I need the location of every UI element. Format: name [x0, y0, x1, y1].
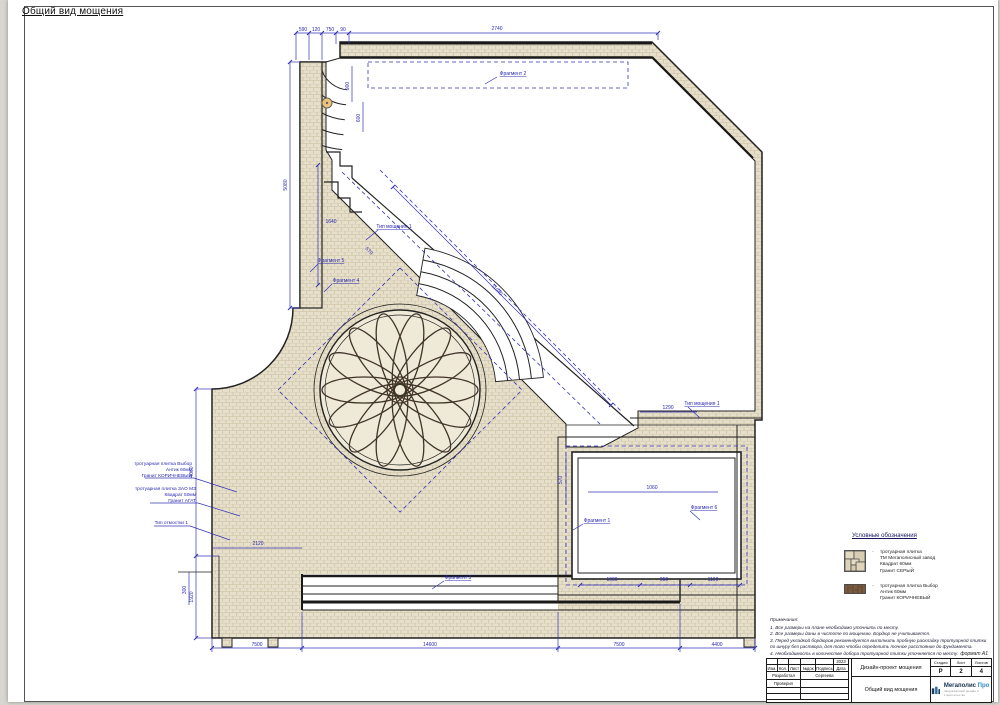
- note-item: 1. Все размеры на плане необходимо уточн…: [770, 625, 988, 632]
- megapolis-logo-icon: [931, 684, 941, 696]
- svg-text:1640: 1640: [325, 219, 336, 225]
- stamp-developer-name: Сергеева: [801, 672, 849, 680]
- note-item: 2. Все размеры даны в чистоте по мощению…: [770, 631, 988, 638]
- svg-text:1190: 1190: [708, 577, 719, 583]
- svg-text:Фрагмент 2: Фрагмент 2: [500, 71, 527, 77]
- title-block-center: Дизайн-проект мощения Общий вид мощения: [852, 659, 931, 702]
- project-name: Дизайн-проект мощения: [852, 659, 930, 677]
- svg-text:1290: 1290: [662, 405, 673, 411]
- svg-text:Фрагмент 5: Фрагмент 5: [318, 258, 345, 264]
- svg-text:1920: 1920: [189, 591, 195, 602]
- svg-text:950: 950: [660, 577, 669, 583]
- legend: Условные обозначения · тротуарная плитка…: [844, 533, 990, 612]
- svg-text:Фрагмент 1: Фрагмент 1: [584, 518, 611, 524]
- sheets-total: 4: [972, 667, 991, 676]
- svg-text:2120: 2120: [252, 541, 263, 547]
- svg-text:Фрагмент 4: Фрагмент 4: [333, 278, 360, 284]
- title-block-right: Стадия Лист Листов Р 2 4 Мегаполис Про л…: [931, 659, 991, 702]
- svg-text:Тип мощения 1: Тип мощения 1: [684, 401, 719, 407]
- svg-text:Антик 60мм: Антик 60мм: [166, 467, 192, 473]
- svg-text:1000: 1000: [606, 577, 617, 583]
- notes-title: Примечания:: [770, 617, 988, 624]
- svg-text:4400: 4400: [711, 642, 722, 648]
- paving-swatch-icon: [844, 550, 866, 572]
- stamp-checker-label: Проверил: [767, 680, 801, 688]
- svg-text:90: 90: [340, 27, 346, 33]
- svg-text:2740: 2740: [491, 26, 502, 32]
- svg-text:7500: 7500: [251, 642, 262, 648]
- svg-text:750: 750: [326, 27, 335, 33]
- legend-item-text: тротуарная плитка Выбор Антик 60мм Грани…: [880, 584, 938, 603]
- company-logo: Мегаполис Про ландшафтный дизайн и строи…: [931, 677, 991, 702]
- paving-swatch-brown-icon: [844, 584, 866, 594]
- legend-item-brown-plate: · тротуарная плитка Выбор Антик 60мм Гра…: [844, 584, 990, 603]
- stamp-developer-label: Разработал: [767, 672, 801, 680]
- svg-text:Фрагмент 6: Фрагмент 6: [691, 505, 718, 511]
- svg-text:тротуарная плитка ЗАО МЗ: тротуарная плитка ЗАО МЗ: [135, 486, 196, 492]
- svg-text:Гранит АГАТ: Гранит АГАТ: [168, 498, 196, 504]
- sheet-name: Общий вид мощения: [852, 677, 930, 702]
- svg-text:900: 900: [345, 82, 351, 91]
- logo-pro: Про: [978, 683, 990, 689]
- svg-text:5080: 5080: [283, 179, 289, 190]
- svg-text:Тип мощения 1: Тип мощения 1: [376, 224, 411, 230]
- legend-item-grey-plate: · тротуарная плитка ТМ Мегаполисный заво…: [844, 550, 990, 575]
- svg-text:590: 590: [299, 27, 308, 33]
- svg-text:1060: 1060: [646, 485, 657, 491]
- format-label: формат А1: [925, 651, 988, 657]
- legend-bullet: ·: [872, 550, 874, 555]
- logo-tagline: ландшафтный дизайн и строительство: [944, 689, 991, 697]
- svg-text:Фрагмент 3: Фрагмент 3: [445, 575, 472, 581]
- svg-text:600: 600: [356, 114, 362, 123]
- svg-text:7500: 7500: [613, 642, 624, 648]
- stage-value: Р: [931, 667, 951, 676]
- title-block-revision-table: 2023 Изм. Кол. Лист №док Подпись Дата Ра…: [767, 659, 852, 702]
- legend-item-text: тротуарная плитка ТМ Мегаполисный завод …: [880, 550, 935, 575]
- logo-name: Мегаполис: [944, 683, 976, 689]
- legend-title: Условные обозначения: [852, 533, 990, 539]
- title-block: 2023 Изм. Кол. Лист №док Подпись Дата Ра…: [766, 658, 992, 703]
- note-item: 3. Перед укладкой бордюров рекомендуется…: [770, 638, 988, 651]
- svg-text:Квадрат 50мм: Квадрат 50мм: [165, 492, 196, 498]
- legend-bullet: ·: [872, 584, 874, 589]
- svg-text:300: 300: [182, 586, 188, 595]
- sheet-number: 2: [951, 667, 971, 676]
- svg-text:120: 120: [312, 27, 321, 33]
- svg-text:тротуарная плитка Выбор: тротуарная плитка Выбор: [134, 461, 192, 467]
- svg-text:570: 570: [558, 476, 564, 485]
- svg-text:Тип отмостки 1: Тип отмостки 1: [155, 520, 189, 526]
- svg-text:14600: 14600: [423, 642, 437, 648]
